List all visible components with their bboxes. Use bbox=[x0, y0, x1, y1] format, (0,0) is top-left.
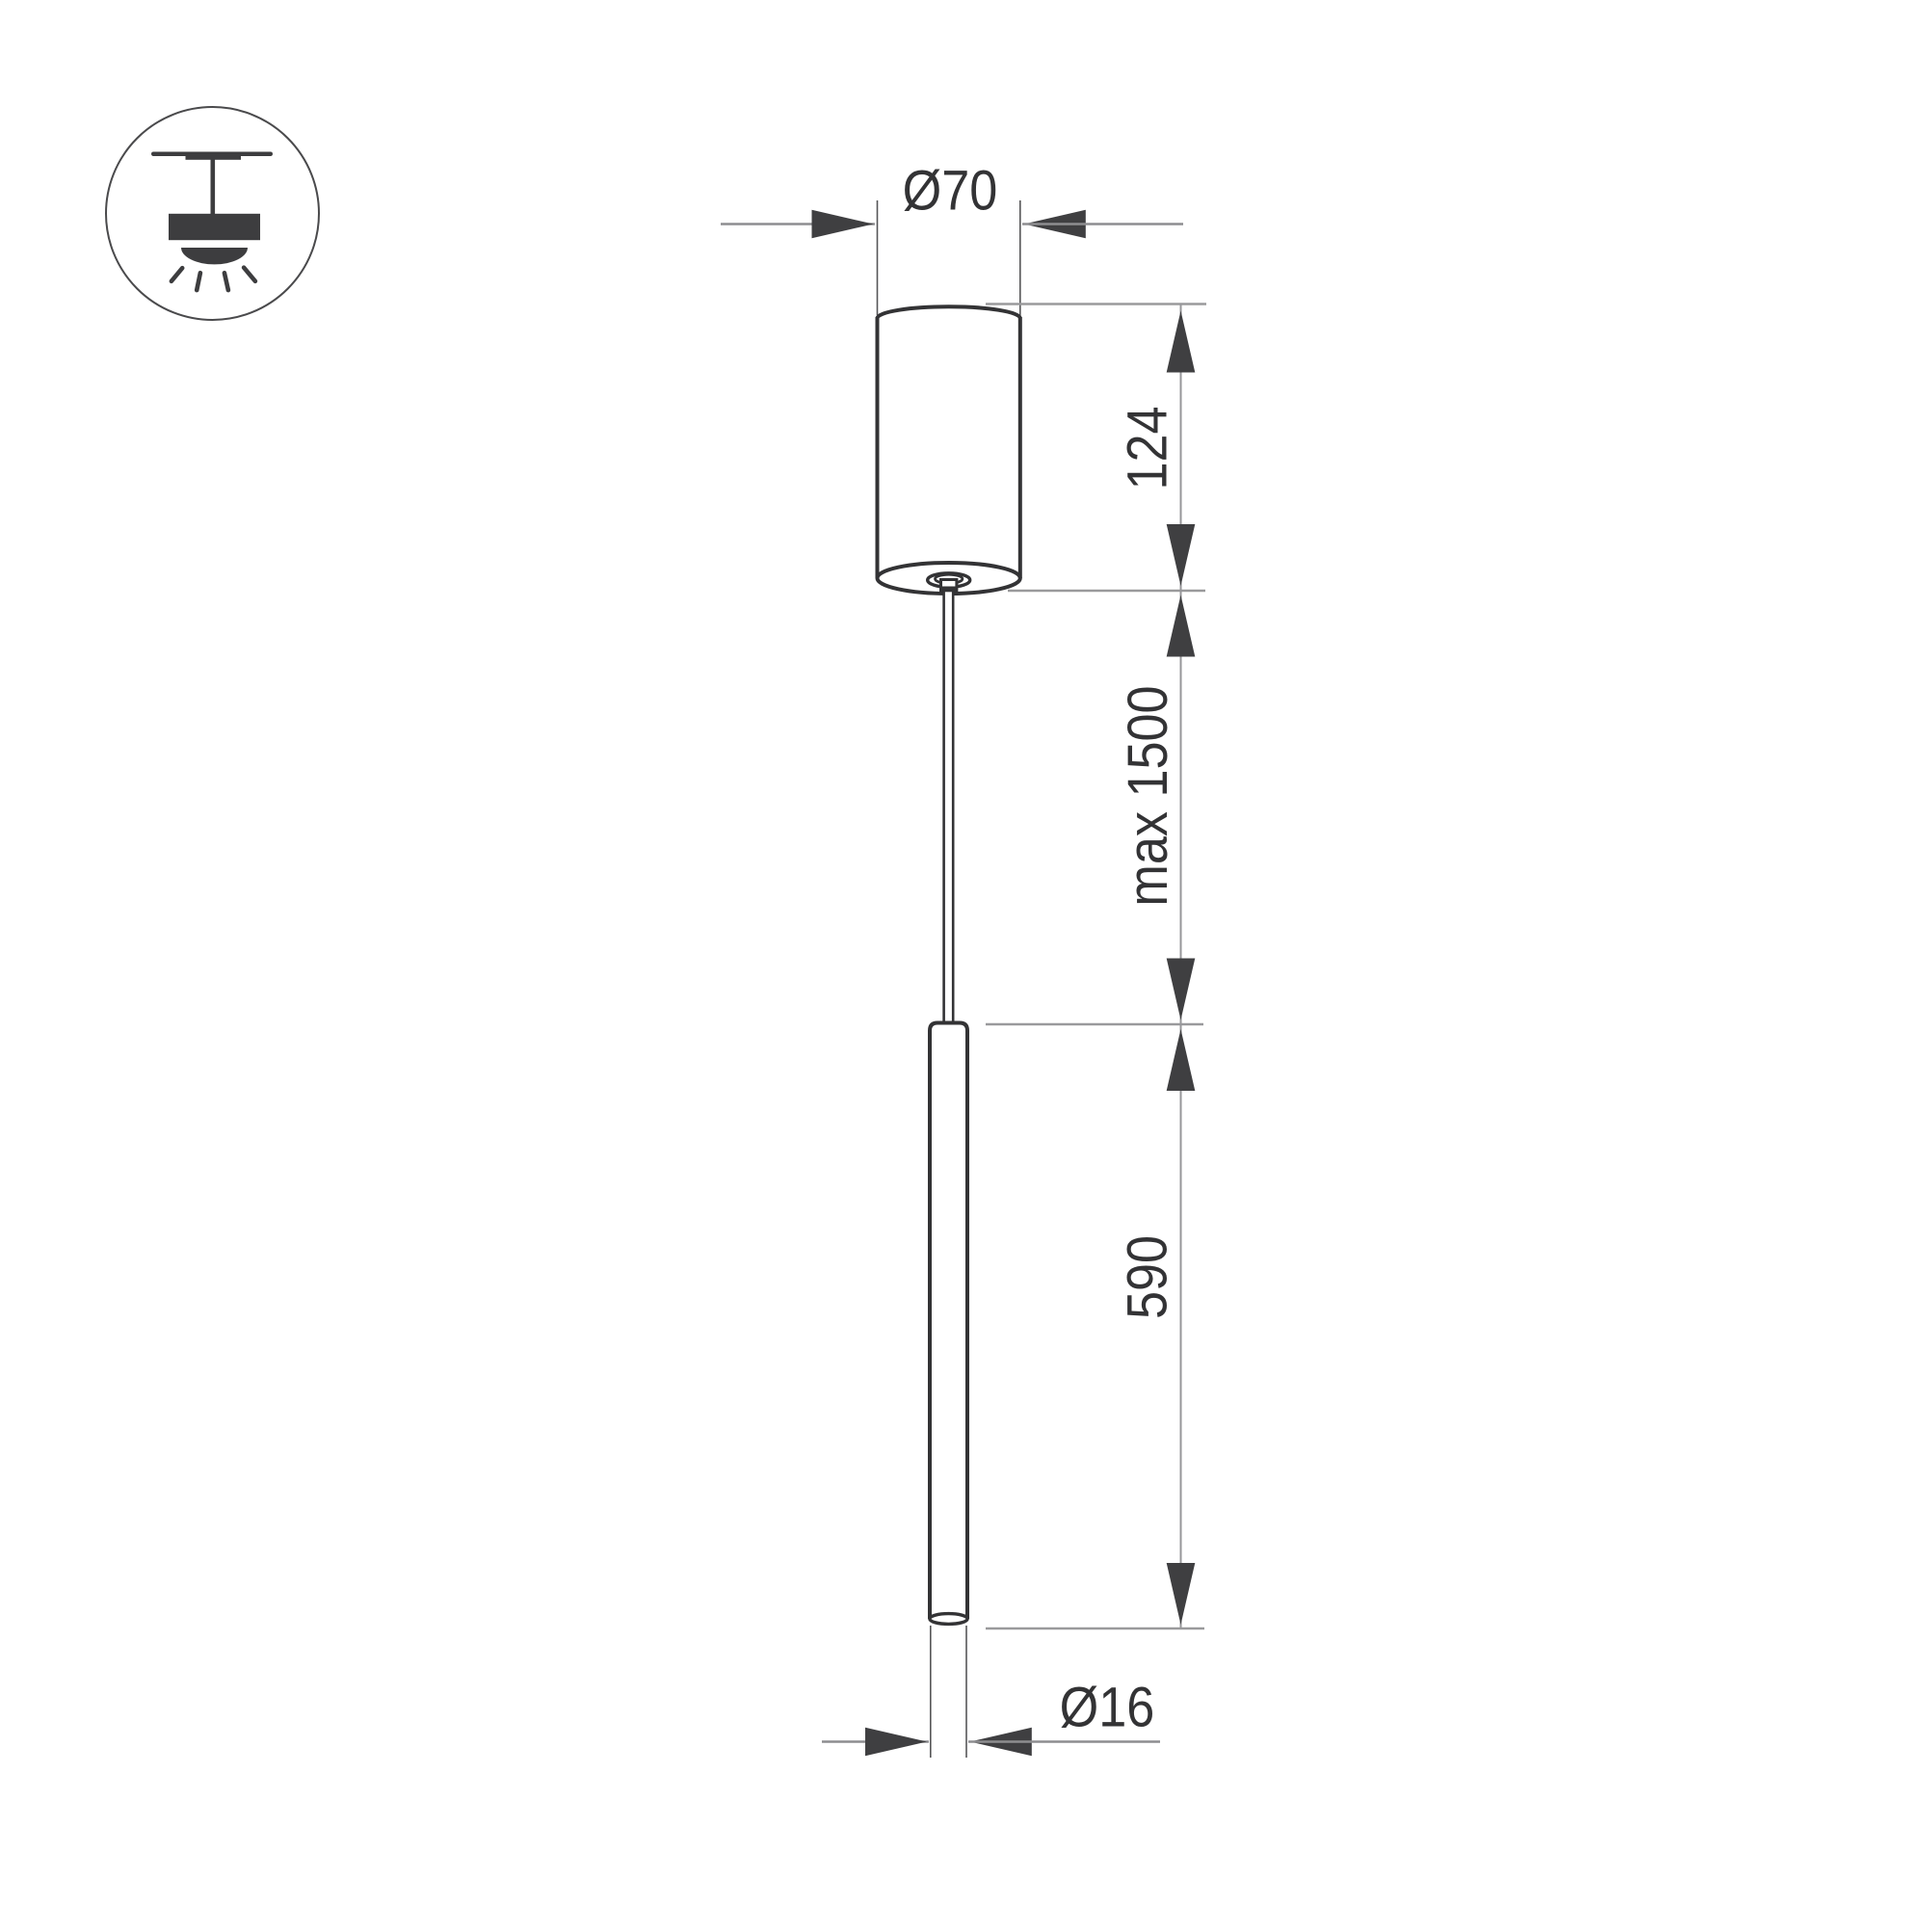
svg-text:Ø70: Ø70 bbox=[903, 159, 998, 222]
svg-text:Ø16: Ø16 bbox=[1060, 1676, 1155, 1738]
svg-text:590: 590 bbox=[1116, 1235, 1178, 1319]
svg-text:124: 124 bbox=[1116, 406, 1178, 490]
svg-text:max 1500: max 1500 bbox=[1116, 685, 1178, 906]
